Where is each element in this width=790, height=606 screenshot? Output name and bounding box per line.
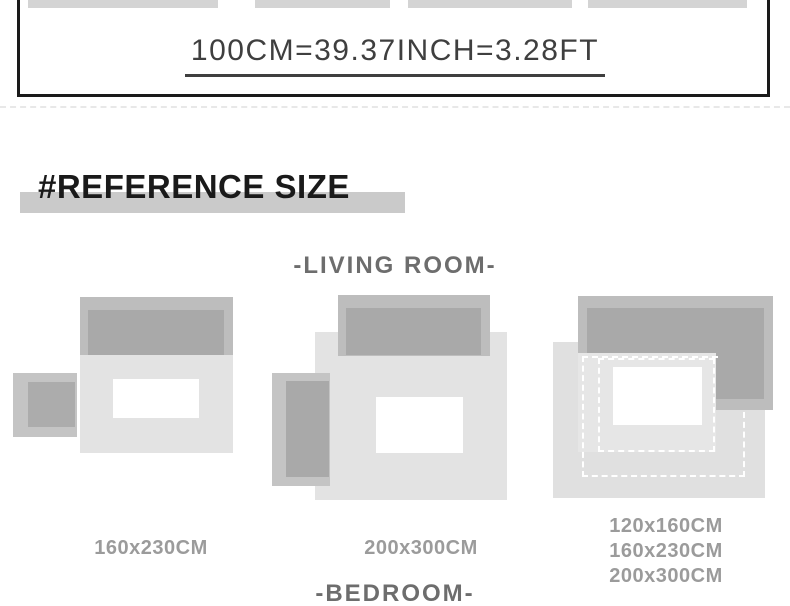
rug-center-panel <box>613 367 702 425</box>
size-label-stack: 120x160CM 160x230CM 200x300CM <box>609 514 722 589</box>
size-label: 160x230CM <box>94 538 207 558</box>
rug-center-panel <box>113 379 199 418</box>
rug-center-panel <box>376 397 463 453</box>
sofa-cushion-shape <box>88 310 224 355</box>
dashed-outline-bottom <box>582 475 745 477</box>
side-table-top-shape <box>28 382 75 427</box>
page-title: #REFERENCE SIZE <box>38 170 350 203</box>
faint-divider-line <box>0 106 790 108</box>
conversion-title-wrap: 100CM=39.37INCH=3.28FT <box>0 34 790 77</box>
side-table-top-shape <box>286 381 329 477</box>
size-label: 120x160CM <box>609 514 722 539</box>
reference-size-infographic: 100CM=39.37INCH=3.28FT #REFERENCE SIZE -… <box>0 0 790 606</box>
size-label: 160x230CM <box>609 539 722 564</box>
dashed-outline-left <box>582 356 584 477</box>
section-label-living-room: -LIVING ROOM- <box>0 254 790 278</box>
conversion-title: 100CM=39.37INCH=3.28FT <box>185 34 605 77</box>
section-label-bedroom: -BEDROOM- <box>0 582 790 606</box>
dashed-outline-right <box>743 412 745 477</box>
sofa-cushion-shape <box>346 308 481 355</box>
size-label: 200x300CM <box>364 538 477 558</box>
